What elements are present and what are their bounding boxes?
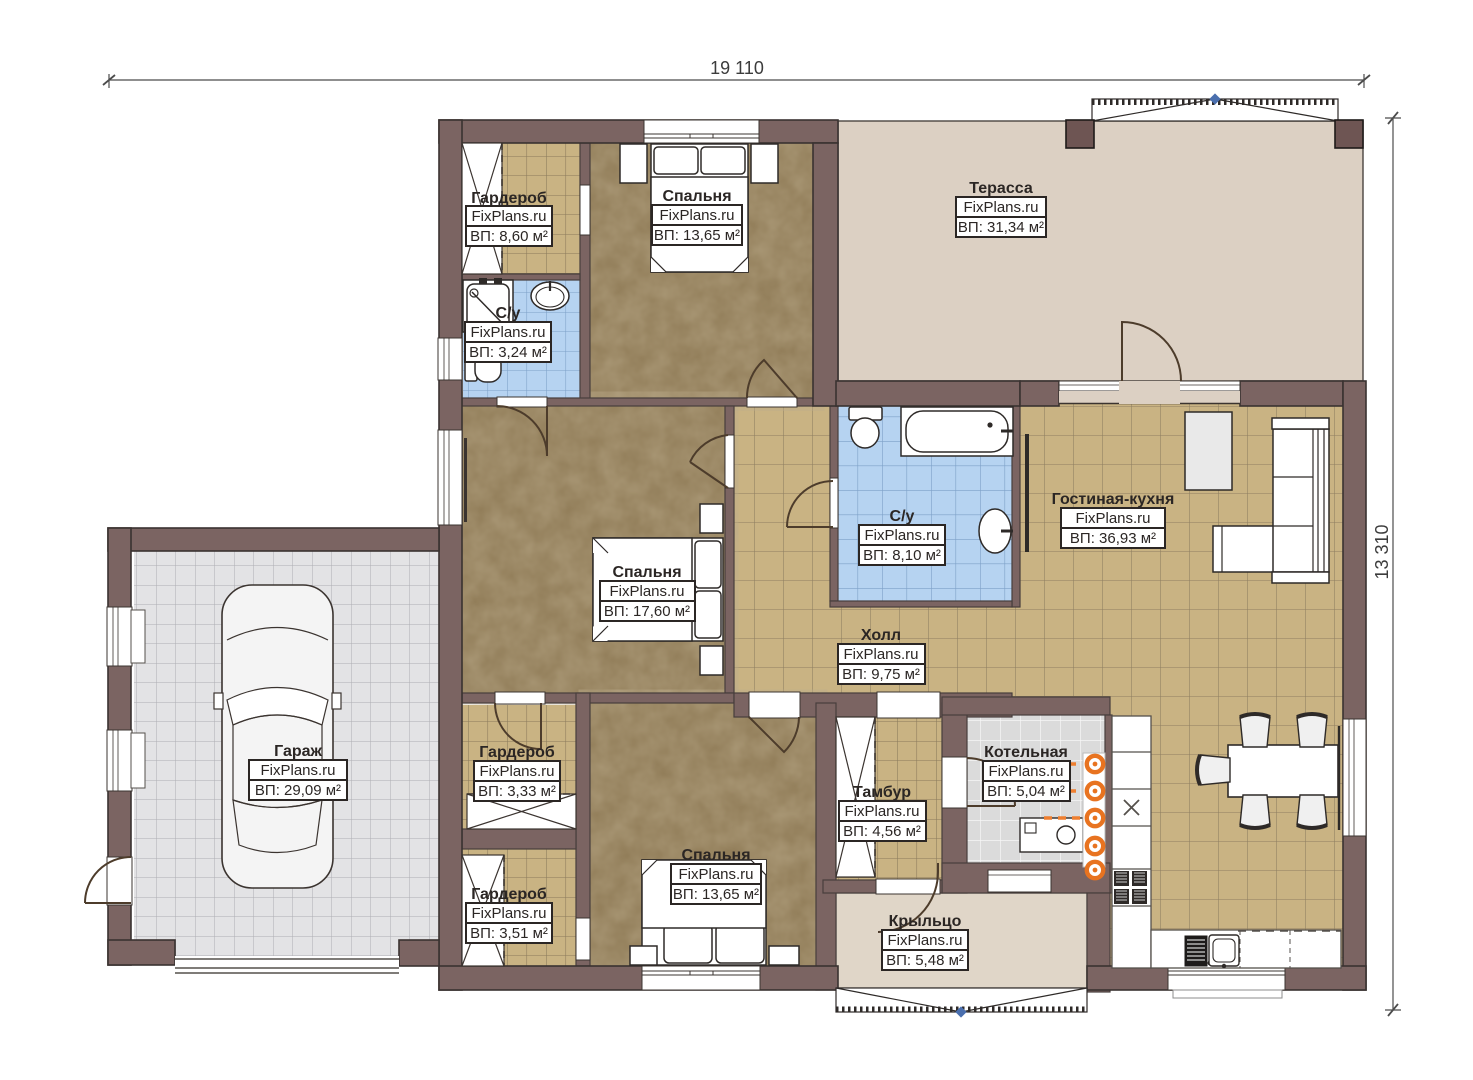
svg-text:ВП: 36,93 м²: ВП: 36,93 м² (1070, 530, 1156, 547)
svg-text:ВП: 5,48 м²: ВП: 5,48 м² (886, 952, 964, 969)
svg-text:ВП: 4,56 м²: ВП: 4,56 м² (843, 823, 921, 840)
svg-text:ВП: 13,65 м²: ВП: 13,65 м² (654, 227, 740, 244)
svg-text:FixPlans.ru: FixPlans.ru (887, 932, 962, 949)
svg-text:Спальня: Спальня (662, 188, 731, 205)
svg-text:ВП: 29,09 м²: ВП: 29,09 м² (255, 782, 341, 799)
svg-text:Спальня: Спальня (681, 847, 750, 864)
svg-text:FixPlans.ru: FixPlans.ru (471, 208, 546, 225)
svg-text:ВП: 3,33 м²: ВП: 3,33 м² (478, 783, 556, 800)
svg-text:FixPlans.ru: FixPlans.ru (864, 527, 939, 544)
svg-text:ВП: 17,60 м²: ВП: 17,60 м² (604, 603, 690, 620)
svg-text:ВП: 9,75 м²: ВП: 9,75 м² (842, 666, 920, 683)
svg-text:FixPlans.ru: FixPlans.ru (844, 803, 919, 820)
svg-text:FixPlans.ru: FixPlans.ru (988, 763, 1063, 780)
svg-text:Гардероб: Гардероб (479, 744, 555, 761)
svg-text:13 310: 13 310 (1372, 524, 1392, 579)
svg-text:Крыльцо: Крыльцо (889, 913, 962, 930)
svg-text:FixPlans.ru: FixPlans.ru (479, 763, 554, 780)
svg-text:С/у: С/у (496, 305, 521, 322)
svg-text:ВП: 8,10 м²: ВП: 8,10 м² (863, 547, 941, 564)
svg-text:С/у: С/у (890, 508, 915, 525)
svg-text:Гардероб: Гардероб (471, 886, 547, 903)
svg-text:Гостиная-кухня: Гостиная-кухня (1052, 491, 1175, 508)
svg-text:FixPlans.ru: FixPlans.ru (659, 207, 734, 224)
svg-text:ВП: 5,04 м²: ВП: 5,04 м² (987, 783, 1065, 800)
svg-text:Котельная: Котельная (984, 744, 1068, 761)
svg-text:FixPlans.ru: FixPlans.ru (260, 762, 335, 779)
svg-text:FixPlans.ru: FixPlans.ru (963, 199, 1038, 216)
svg-text:ВП: 31,34 м²: ВП: 31,34 м² (958, 219, 1044, 236)
svg-text:FixPlans.ru: FixPlans.ru (470, 324, 545, 341)
svg-text:FixPlans.ru: FixPlans.ru (678, 866, 753, 883)
svg-text:Гардероб: Гардероб (471, 190, 547, 207)
svg-text:19 110: 19 110 (710, 58, 764, 78)
svg-text:ВП: 3,51 м²: ВП: 3,51 м² (470, 925, 548, 942)
svg-text:FixPlans.ru: FixPlans.ru (1075, 510, 1150, 527)
svg-text:Холл: Холл (861, 627, 901, 644)
svg-text:ВП: 13,65 м²: ВП: 13,65 м² (673, 886, 759, 903)
svg-text:ВП: 3,24 м²: ВП: 3,24 м² (469, 344, 547, 361)
svg-text:Тамбур: Тамбур (853, 784, 911, 801)
svg-text:Спальня: Спальня (612, 564, 681, 581)
svg-text:Терасса: Терасса (969, 180, 1033, 197)
svg-text:Гараж: Гараж (274, 743, 322, 760)
svg-text:ВП: 8,60 м²: ВП: 8,60 м² (470, 228, 548, 245)
svg-text:FixPlans.ru: FixPlans.ru (843, 646, 918, 663)
svg-text:FixPlans.ru: FixPlans.ru (609, 583, 684, 600)
svg-text:FixPlans.ru: FixPlans.ru (471, 905, 546, 922)
